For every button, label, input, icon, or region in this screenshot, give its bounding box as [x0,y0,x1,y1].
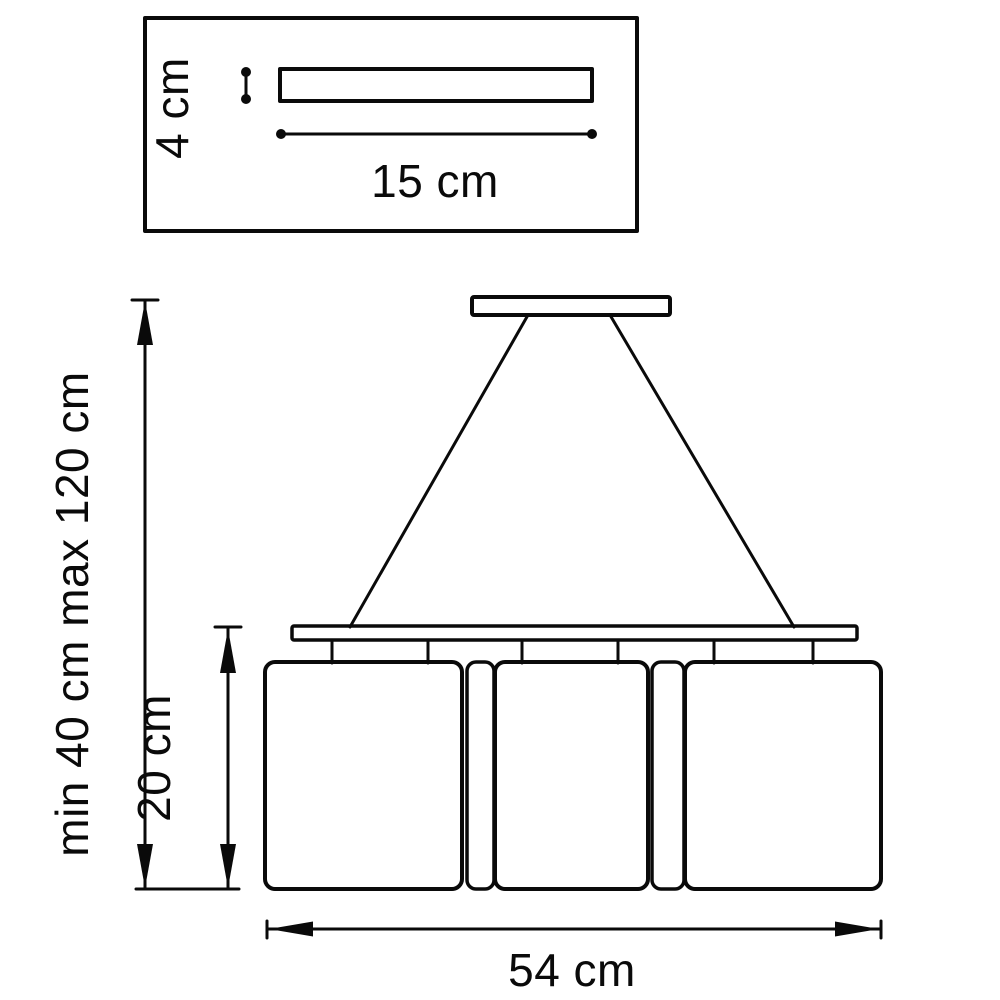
pendant-lamp-dimension-diagram: 4 cm 15 cm [0,0,1000,1000]
dimension-endpoint-dot [241,67,251,77]
canopy-profile [280,69,592,101]
canopy-detail-panel: 4 cm 15 cm [145,18,637,231]
suspension-cable-right [610,315,794,627]
dimension-endpoint-dot [587,129,597,139]
arrowhead-right [835,922,879,937]
shade-left [265,662,462,889]
dimension-endpoint-dot [276,129,286,139]
arrowhead-down [220,844,236,888]
canopy-height-label: 4 cm [146,57,198,159]
suspension-cable-left [350,315,528,627]
arrowhead-left [269,922,313,937]
shade-spacer [467,662,494,889]
canopy-width-label: 15 cm [371,155,499,207]
overall-width-dimension: 54 cm [267,921,881,996]
pendant-drawing [265,297,881,889]
overall-width-label: 54 cm [508,944,636,996]
ceiling-plate [472,297,670,315]
dimension-drawing: 4 cm 15 cm [0,0,1000,1000]
shade-right [685,662,881,889]
shade-spacer [652,662,684,889]
overall-height-label: min 40 cm max 120 cm [46,371,98,856]
shade-center [495,662,648,889]
arrowhead-down [137,844,153,888]
arrowhead-up [220,629,236,673]
arrowhead-up [137,301,153,345]
support-bar [292,626,857,640]
dimension-endpoint-dot [241,94,251,104]
shade-height-label: 20 cm [128,694,180,822]
